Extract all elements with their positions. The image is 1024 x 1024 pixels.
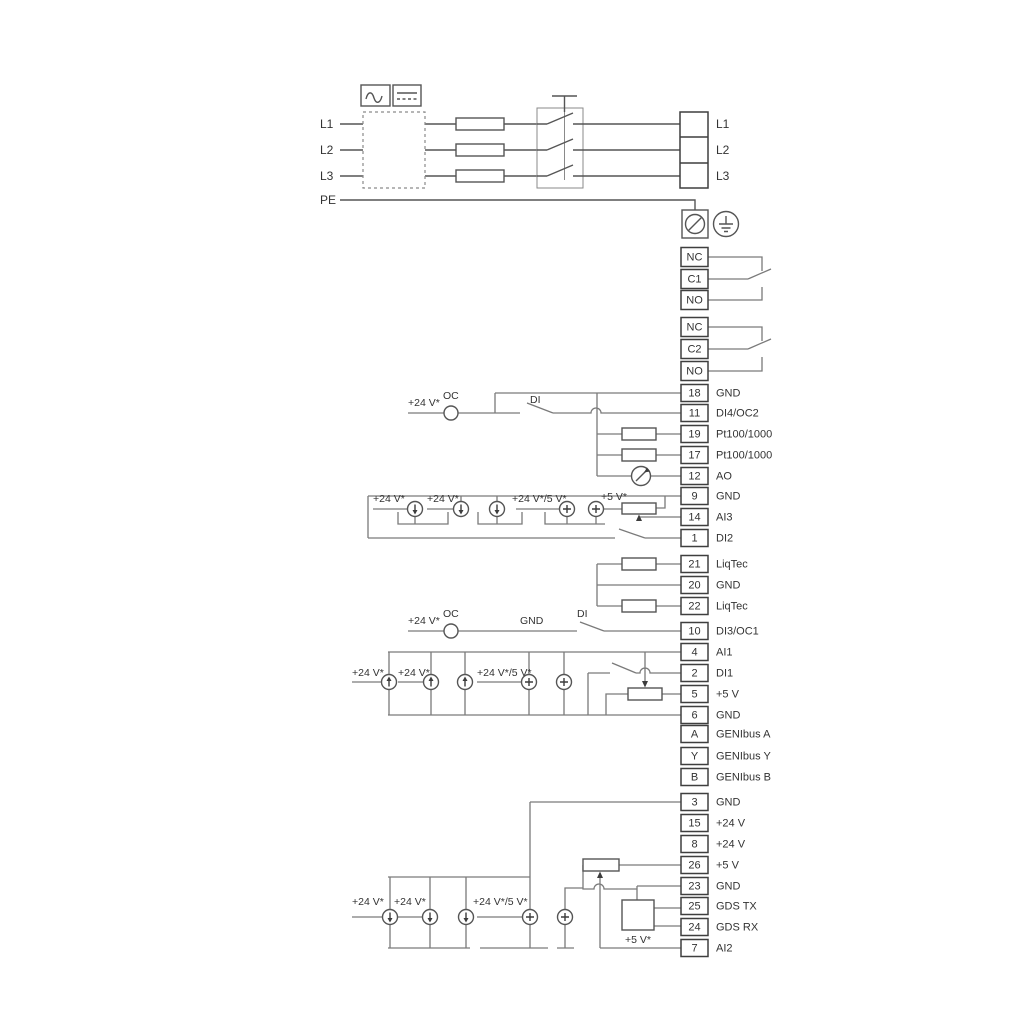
- terminal-row-19: 19Pt100/1000: [681, 426, 772, 443]
- terminal-label: +5 V: [716, 689, 740, 701]
- terminal-number: 1: [691, 533, 697, 545]
- fuse-icon: [456, 170, 504, 182]
- terminal-label: GENIbus Y: [716, 751, 771, 763]
- power-section: L1 L2 L3 PE L1 L2 L3: [320, 85, 739, 238]
- current-source-icon: [490, 502, 505, 517]
- terminal-row-5: 5+5 V: [681, 686, 740, 703]
- terminal-row-B: BGENIbus B: [681, 769, 771, 786]
- terminal-row-4: 4AI1: [681, 644, 733, 661]
- terminal-label: GENIbus B: [716, 772, 771, 784]
- terminal-label: GND: [716, 710, 741, 722]
- terminal-row-9: 9GND: [681, 488, 741, 505]
- liqtec-section: [597, 558, 682, 612]
- terminal-row-26: 26+5 V: [681, 857, 740, 874]
- current-source-icon: [382, 675, 397, 690]
- current-source-icon: [454, 502, 469, 517]
- terminal-number: 9: [691, 491, 697, 503]
- terminal-number: 26: [688, 860, 700, 872]
- terminal-label: AI1: [716, 647, 733, 659]
- relay-terminal-label: NO: [686, 295, 703, 307]
- wire-label: GND: [520, 615, 544, 627]
- terminal-row-6: 6GND: [681, 707, 741, 724]
- plus-source-icon: [589, 502, 604, 517]
- terminal-number: 12: [688, 471, 700, 483]
- potentiometer-icon: [628, 688, 662, 700]
- wiring-diagram: L1 L2 L3 PE L1 L2 L3 +24 V* OC DI +24 V*…: [0, 0, 1024, 1024]
- terminal-row-Y: YGENIbus Y: [681, 748, 771, 765]
- relay-terminals: NCC1NONCC2NO: [681, 248, 708, 381]
- relay-terminal-NO: NO: [681, 362, 708, 381]
- terminal-row-A: AGENIbus A: [681, 726, 771, 743]
- terminal-number: 22: [688, 601, 700, 613]
- terminal-number: 11: [689, 408, 700, 420]
- power-lines: [340, 124, 695, 210]
- current-source-icon: [458, 675, 473, 690]
- wire-label: OC: [443, 390, 459, 402]
- wire-label: +24 V*/5 V*: [473, 896, 528, 908]
- terminal-number: 6: [691, 710, 697, 722]
- terminal-row-11: 11DI4/OC2: [681, 405, 759, 422]
- filter-box: [363, 112, 425, 188]
- terminal-number: 8: [691, 839, 697, 851]
- terminal-strip: 18GND11DI4/OC219Pt100/100017Pt100/100012…: [681, 385, 772, 957]
- plus-source-icon: [558, 910, 573, 925]
- open-collector-icon: [444, 624, 458, 638]
- output-line-label: L3: [716, 169, 730, 183]
- terminal-row-2: 2DI1: [681, 665, 733, 682]
- input-line-label: L2: [320, 143, 334, 157]
- wire-label: +24 V*: [394, 896, 426, 908]
- terminal-number: 2: [691, 668, 697, 680]
- terminal-number: 15: [688, 818, 700, 830]
- terminal-label: DI4/OC2: [716, 408, 759, 420]
- terminal-number: 18: [688, 388, 700, 400]
- terminal-row-1: 1DI2: [681, 530, 733, 547]
- terminal-row-12: 12AO: [681, 468, 732, 485]
- terminal-label: GND: [716, 491, 741, 503]
- terminal-number: 7: [691, 943, 697, 955]
- ai1-section: +24 V* +24 V* +24 V*/5 V*: [352, 652, 682, 715]
- terminal-number: 4: [691, 647, 697, 659]
- wire-label: +24 V*: [352, 667, 384, 679]
- fuse-icon: [456, 144, 504, 156]
- di4-oc2-section: +24 V* OC DI: [408, 390, 682, 486]
- relay-terminal-C1: C1: [681, 270, 708, 289]
- plus-source-icon: [557, 675, 572, 690]
- terminal-label: LiqTec: [716, 559, 748, 571]
- terminal-label: +24 V: [716, 839, 746, 851]
- terminal-number: 14: [688, 512, 700, 524]
- plus-source-icon: [522, 675, 537, 690]
- wiper-arrow-icon: [636, 515, 642, 522]
- terminal-label: GND: [716, 797, 741, 809]
- terminal-label: GENIbus A: [716, 729, 771, 741]
- current-source-icon: [459, 910, 474, 925]
- terminal-label: +24 V: [716, 818, 746, 830]
- terminal-number: 19: [688, 429, 700, 441]
- input-line-label: L1: [320, 117, 334, 131]
- terminal-label: AO: [716, 471, 732, 483]
- fuse-icon: [456, 118, 504, 130]
- relay-terminal-label: C1: [687, 274, 701, 286]
- terminal-number: 23: [688, 881, 700, 893]
- gds-sensor-box: [622, 900, 654, 930]
- terminal-label: GND: [716, 881, 741, 893]
- plus-source-icon: [523, 910, 538, 925]
- relay-terminal-label: NO: [686, 366, 703, 378]
- relay-terminal-NC: NC: [681, 318, 708, 337]
- terminal-label: AI3: [716, 512, 733, 524]
- terminal-label: GDS TX: [716, 901, 757, 913]
- terminal-row-24: 24GDS RX: [681, 919, 759, 936]
- terminal-row-20: 20GND: [681, 577, 741, 594]
- terminal-number: 21: [688, 559, 700, 571]
- terminal-label: GDS RX: [716, 922, 759, 934]
- open-collector-icon: [444, 406, 458, 420]
- ac-symbol-icon: [361, 85, 390, 106]
- wire-label: +5 V*: [625, 934, 651, 946]
- terminal-row-8: 8+24 V: [681, 836, 746, 853]
- terminal-label: Pt100/1000: [716, 450, 772, 462]
- terminal-label: +5 V: [716, 860, 740, 872]
- resistor-icon: [622, 449, 656, 461]
- terminal-number: B: [691, 772, 698, 784]
- terminal-number: 24: [688, 922, 700, 934]
- screw-terminal-icon: [682, 210, 708, 238]
- relay-terminal-label: NC: [687, 252, 703, 264]
- plus-source-icon: [560, 502, 575, 517]
- terminal-row-21: 21LiqTec: [681, 556, 748, 573]
- terminal-number: 3: [691, 797, 697, 809]
- terminal-row-17: 17Pt100/1000: [681, 447, 772, 464]
- terminal-label: GND: [716, 388, 741, 400]
- terminal-row-7: 7AI2: [681, 940, 733, 957]
- terminal-row-14: 14AI3: [681, 509, 733, 526]
- source-symbols: [382, 502, 604, 925]
- current-source-icon: [423, 910, 438, 925]
- relay-contact-icon: [708, 257, 771, 371]
- potentiometer-icon: [583, 859, 619, 871]
- current-source-icon: [408, 502, 423, 517]
- terminal-label: LiqTec: [716, 601, 748, 613]
- terminal-number: 20: [688, 580, 700, 592]
- terminal-number: 10: [688, 626, 700, 638]
- wire-label: OC: [443, 608, 459, 620]
- wire-label: +24 V*: [427, 493, 459, 505]
- relay-terminal-C2: C2: [681, 340, 708, 359]
- wire-label: +5 V*: [601, 491, 627, 503]
- relay-terminal-NO: NO: [681, 291, 708, 310]
- ai2-gds-section: +24 V* +24 V* +24 V*/5 V* +5 V*: [352, 802, 682, 948]
- wire-label: +24 V*: [352, 896, 384, 908]
- output-line-label: L1: [716, 117, 730, 131]
- terminal-number: 17: [688, 450, 700, 462]
- relay-terminal-NC: NC: [681, 248, 708, 267]
- resistor-icon: [622, 428, 656, 440]
- resistor-icon: [622, 558, 656, 570]
- terminal-row-15: 15+24 V: [681, 815, 746, 832]
- terminal-number: Y: [691, 751, 699, 763]
- terminal-number: A: [691, 729, 699, 741]
- wire-label: +24 V*: [408, 397, 440, 409]
- output-line-label: L2: [716, 143, 730, 157]
- dc-symbol-icon: [393, 85, 421, 106]
- terminal-label: DI1: [716, 668, 733, 680]
- terminal-row-22: 22LiqTec: [681, 598, 748, 615]
- terminal-row-25: 25GDS TX: [681, 898, 757, 915]
- wire-label: DI: [577, 608, 588, 620]
- input-line-label: L3: [320, 169, 334, 183]
- terminal-row-23: 23GND: [681, 878, 741, 895]
- terminal-label: DI3/OC1: [716, 626, 759, 638]
- terminal-label: AI2: [716, 943, 733, 955]
- wiper-arrow-icon: [597, 872, 603, 879]
- terminal-row-3: 3GND: [681, 794, 741, 811]
- wire-label: +24 V*/5 V*: [512, 493, 567, 505]
- terminal-row-10: 10DI3/OC1: [681, 623, 759, 640]
- main-switch-icon: [537, 96, 680, 188]
- terminal-label: DI2: [716, 533, 733, 545]
- terminal-label: GND: [716, 580, 741, 592]
- terminal-label: Pt100/1000: [716, 429, 772, 441]
- relay-terminal-label: NC: [687, 322, 703, 334]
- wiper-arrow-icon: [642, 681, 648, 688]
- terminal-row-18: 18GND: [681, 385, 741, 402]
- input-line-label: PE: [320, 193, 336, 207]
- resistor-icon: [622, 600, 656, 612]
- analog-output-meter-icon: [632, 467, 651, 486]
- terminal-number: 25: [688, 901, 700, 913]
- diagram-canvas: L1 L2 L3 PE L1 L2 L3 +24 V* OC DI +24 V*…: [0, 0, 1024, 1024]
- wire-label: DI: [530, 394, 541, 406]
- earth-ground-icon: [714, 212, 739, 237]
- wire-label: +24 V*: [373, 493, 405, 505]
- current-source-icon: [383, 910, 398, 925]
- potentiometer-icon: [622, 503, 656, 514]
- terminal-number: 5: [691, 689, 697, 701]
- relay-terminal-label: C2: [687, 344, 701, 356]
- wire-label: +24 V*: [408, 615, 440, 627]
- power-output-terminal: [680, 112, 708, 188]
- current-source-icon: [424, 675, 439, 690]
